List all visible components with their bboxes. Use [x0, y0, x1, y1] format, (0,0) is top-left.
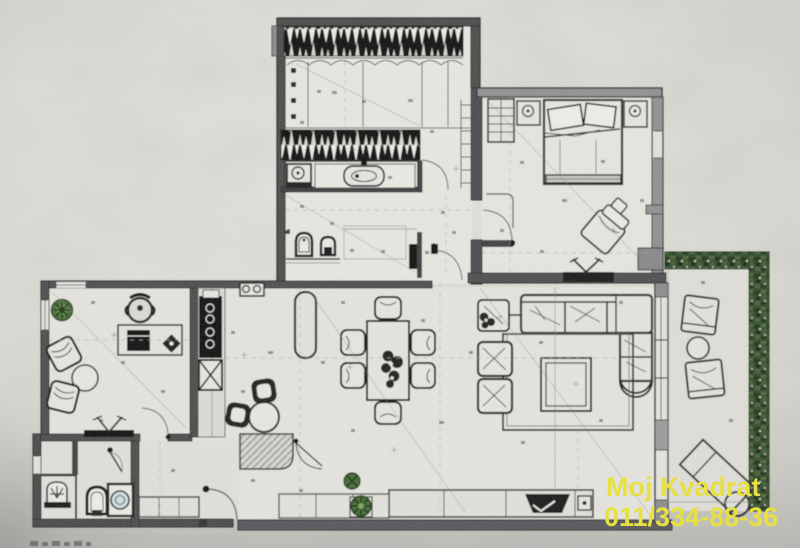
svg-text:011/334-88-36: 011/334-88-36 — [604, 502, 778, 532]
svg-text:Moj Kvadrat: Moj Kvadrat — [606, 472, 761, 502]
